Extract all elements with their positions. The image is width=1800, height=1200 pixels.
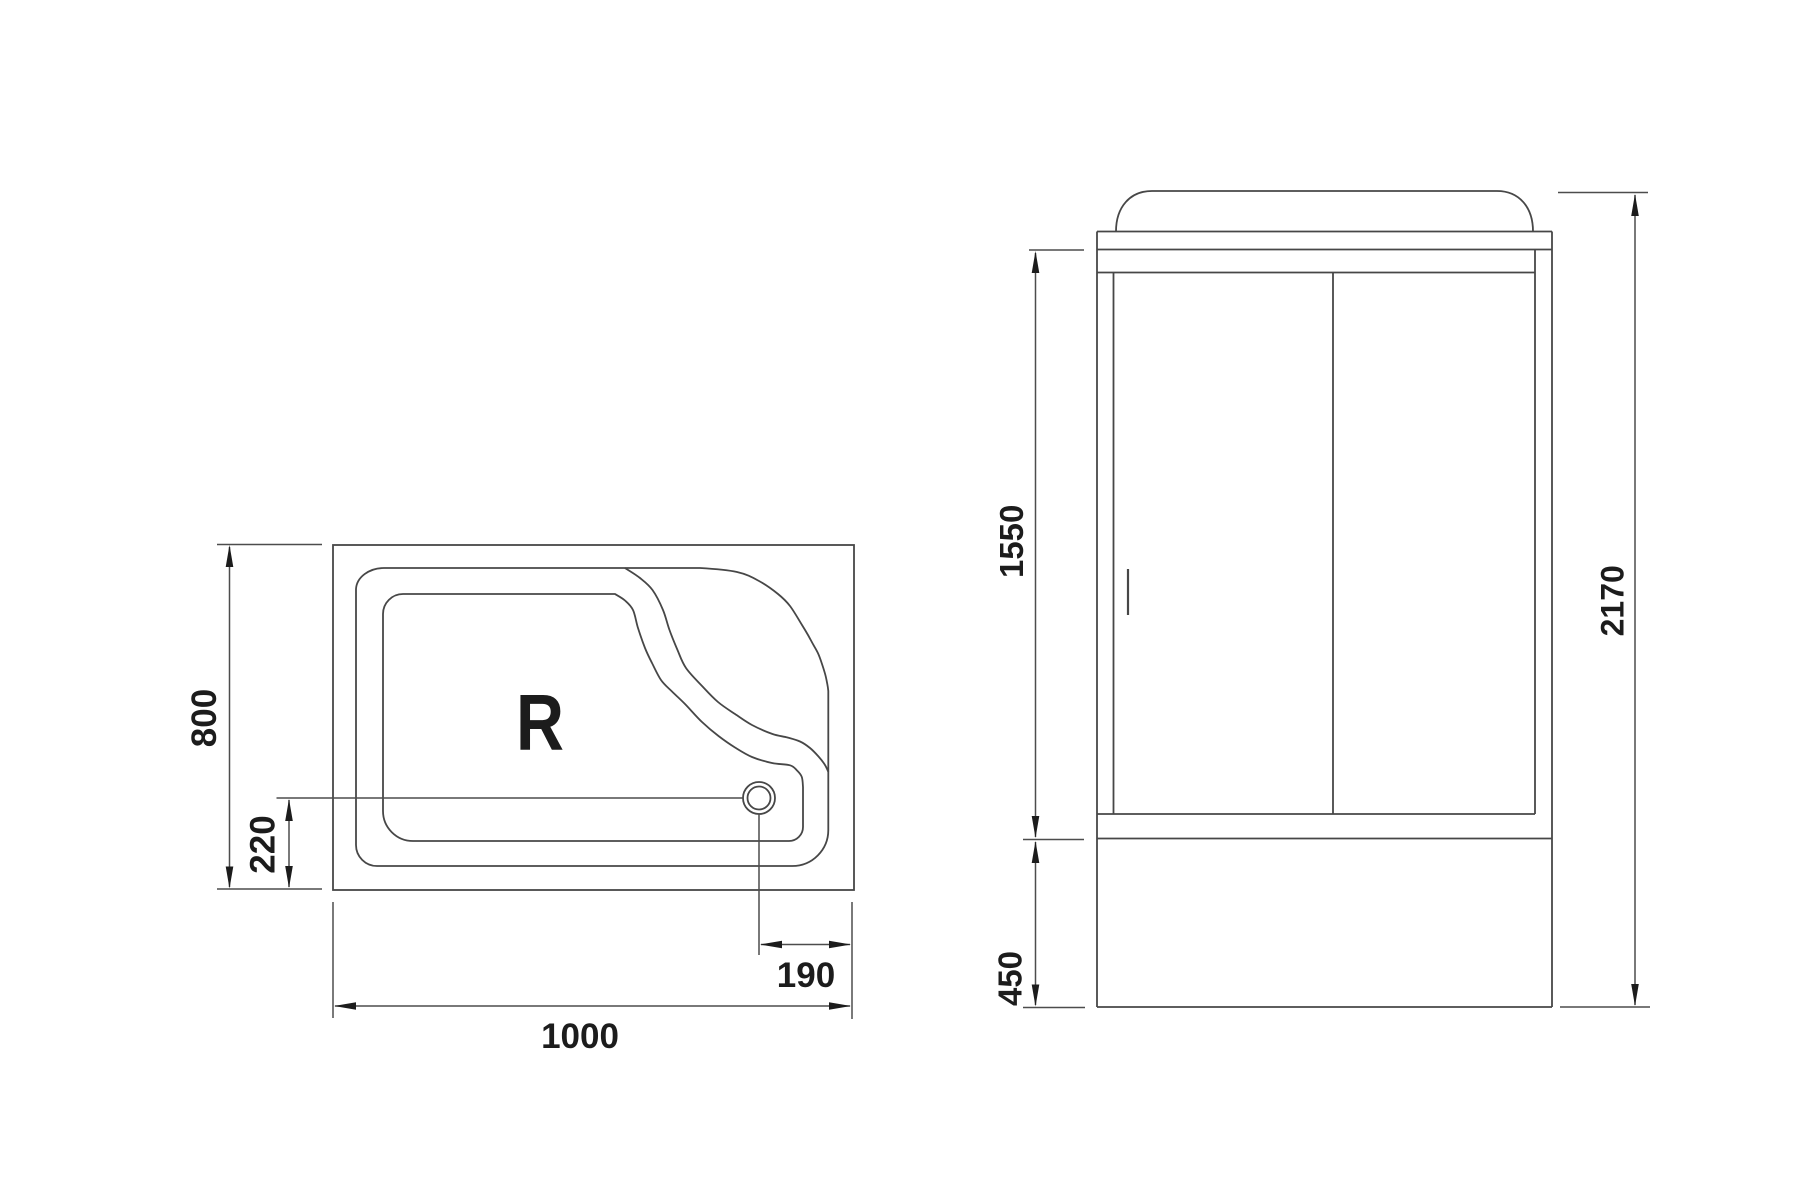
svg-text:R: R	[516, 678, 564, 767]
svg-text:190: 190	[777, 956, 835, 995]
svg-text:1550: 1550	[993, 505, 1030, 578]
svg-text:2170: 2170	[1594, 565, 1630, 636]
svg-text:450: 450	[992, 951, 1029, 1006]
svg-text:800: 800	[185, 689, 224, 747]
svg-text:220: 220	[244, 815, 283, 873]
svg-text:1000: 1000	[541, 1017, 619, 1056]
